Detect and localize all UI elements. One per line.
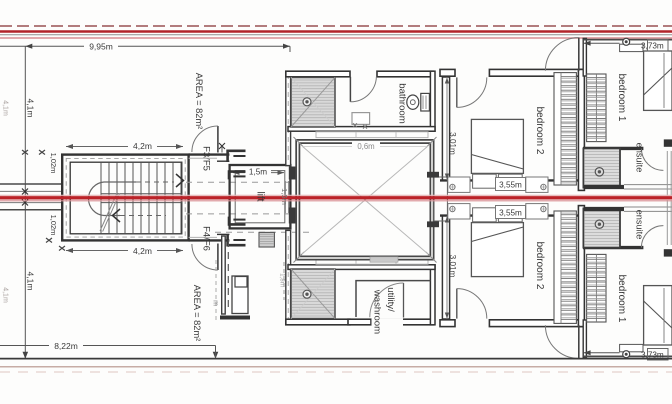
svg-text:1,8m: 1,8m — [279, 273, 286, 287]
svg-text:3,73m: 3,73m — [641, 42, 664, 51]
svg-text:4,2m: 4,2m — [133, 246, 152, 256]
svg-text:1,5m: 1,5m — [280, 188, 289, 205]
svg-text:3,01m: 3,01m — [448, 132, 457, 155]
svg-text:bedroom 1: bedroom 1 — [616, 275, 627, 323]
svg-text:AREA = 82m²: AREA = 82m² — [192, 285, 202, 342]
svg-text:0,6m: 0,6m — [357, 142, 374, 151]
svg-text:bedroom 2: bedroom 2 — [534, 242, 545, 290]
svg-text:3,01m: 3,01m — [448, 255, 457, 278]
svg-text:F4/F6: F4/F6 — [201, 226, 212, 251]
svg-text:8,22m: 8,22m — [54, 341, 78, 351]
svg-text:4,1m: 4,1m — [2, 100, 9, 116]
svg-text:ensuite: ensuite — [635, 143, 645, 173]
svg-text:4,1m: 4,1m — [26, 99, 36, 118]
svg-text:1,5m: 1,5m — [249, 168, 267, 177]
svg-text:1,02m: 1,02m — [49, 153, 58, 174]
svg-text:ensuite: ensuite — [635, 210, 645, 240]
svg-text:9,95m: 9,95m — [89, 42, 113, 52]
svg-text:utility/: utility/ — [385, 287, 396, 312]
svg-text:4,2m: 4,2m — [133, 141, 152, 151]
svg-text:bedroom 2: bedroom 2 — [534, 107, 545, 155]
svg-text:lift: lift — [255, 192, 266, 202]
svg-text:4,1m: 4,1m — [2, 287, 9, 303]
svg-text:4,1m: 4,1m — [26, 272, 36, 291]
svg-text:3,55m: 3,55m — [499, 180, 522, 189]
svg-text:bathroom: bathroom — [397, 83, 408, 124]
svg-text:bedroom 1: bedroom 1 — [616, 74, 627, 122]
svg-text:AREA = 82m²: AREA = 82m² — [194, 73, 204, 130]
svg-text:m: m — [212, 300, 219, 306]
svg-text:3,55m: 3,55m — [499, 208, 522, 217]
svg-text:1,02m: 1,02m — [49, 215, 58, 236]
svg-text:washroom: washroom — [372, 289, 383, 334]
